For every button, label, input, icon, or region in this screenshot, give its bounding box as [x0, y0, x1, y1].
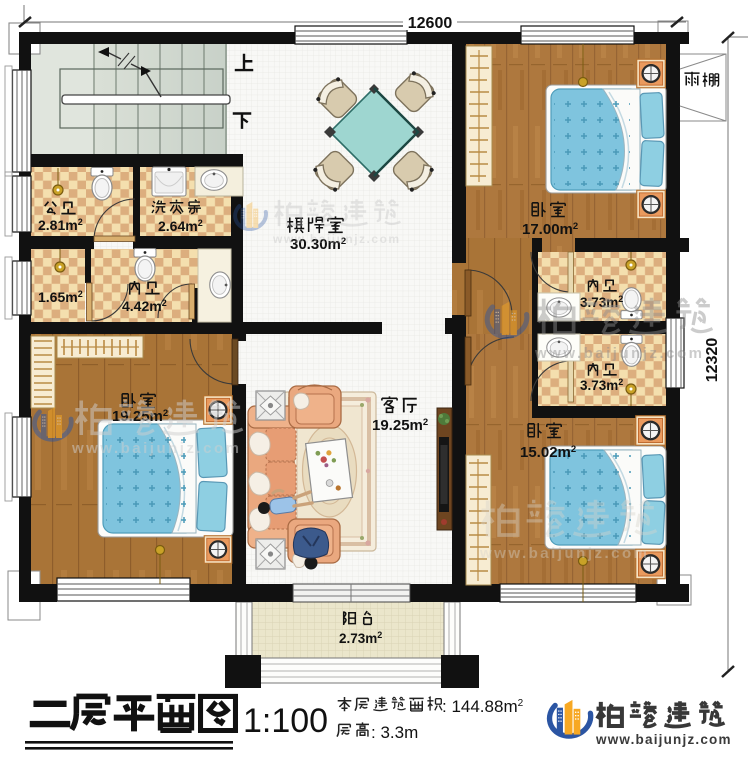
svg-text:www.baijunjz.com: www.baijunjz.com [479, 545, 649, 562]
svg-text:2.64m2: 2.64m2 [158, 218, 203, 234]
svg-text:: 144.88m2: : 144.88m2 [442, 697, 524, 716]
svg-text:4.42m2: 4.42m2 [122, 298, 167, 314]
svg-text:2.73m2: 2.73m2 [339, 630, 382, 646]
svg-text:: 3.3m: : 3.3m [371, 723, 418, 742]
svg-text:12320: 12320 [704, 338, 721, 383]
svg-text:1:100: 1:100 [243, 702, 328, 740]
svg-text:1.65m2: 1.65m2 [38, 289, 83, 305]
svg-text:www.baijunjz.com: www.baijunjz.com [534, 345, 704, 362]
svg-text:www.baijunjz.com: www.baijunjz.com [595, 732, 732, 747]
svg-text:19.25m2: 19.25m2 [372, 417, 428, 434]
svg-text:15.02m2: 15.02m2 [520, 444, 576, 461]
svg-text:12600: 12600 [408, 15, 453, 32]
svg-text:www.baijunjz.com: www.baijunjz.com [71, 440, 241, 457]
svg-text:2.81m2: 2.81m2 [38, 217, 83, 233]
svg-text:3.73m2: 3.73m2 [580, 377, 623, 393]
svg-text:17.00m2: 17.00m2 [522, 221, 578, 238]
svg-text:www.baijunjz.com: www.baijunjz.com [272, 232, 401, 246]
